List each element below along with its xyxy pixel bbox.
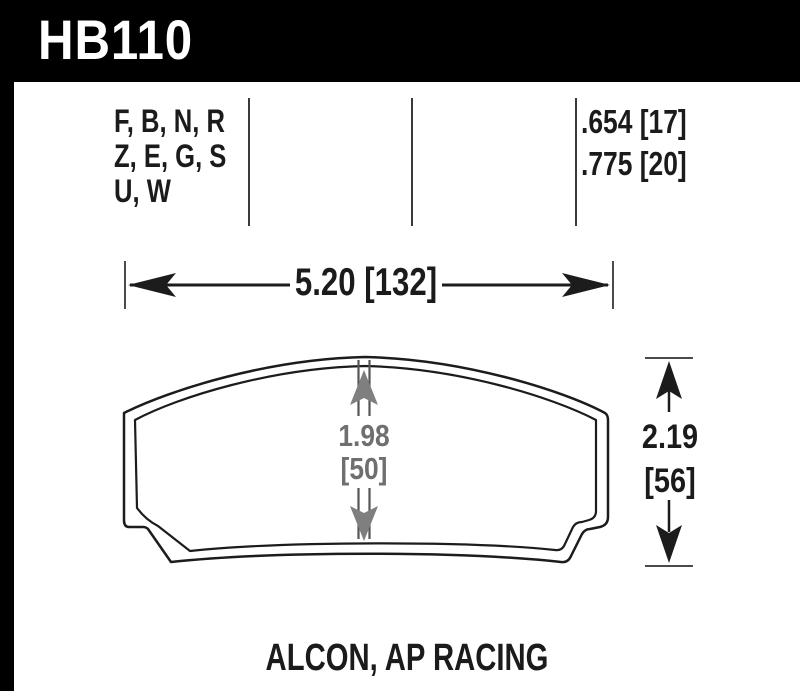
header-bar: HB110 xyxy=(0,0,800,82)
compound-codes-line: U, W xyxy=(114,174,226,209)
pad-thickness-line: .775 [20] xyxy=(581,143,687,185)
compound-codes-line: Z, E, G, S xyxy=(114,139,226,174)
center-height-mm: [50] xyxy=(313,452,415,485)
center-height-inches: 1.98 xyxy=(313,419,415,452)
overall-height-dimension-label: 2.19 [56] xyxy=(628,415,713,503)
overall-height-inches: 2.19 xyxy=(628,415,713,459)
pad-thickness-values: .654 [17] .775 [20] xyxy=(581,101,687,185)
pad-thickness-line: .654 [17] xyxy=(581,101,687,143)
compound-codes-line: F, B, N, R xyxy=(114,104,226,139)
compound-codes: F, B, N, R Z, E, G, S U, W xyxy=(114,104,226,209)
center-height-dimension-label: 1.98 [50] xyxy=(313,419,415,485)
overall-height-mm: [56] xyxy=(628,459,713,503)
caliper-fitment: ALCON, AP RACING xyxy=(104,637,709,680)
left-border-strip xyxy=(0,0,14,691)
width-dimension-label: 5.20 [132] xyxy=(270,261,462,305)
part-number: HB110 xyxy=(38,9,193,71)
